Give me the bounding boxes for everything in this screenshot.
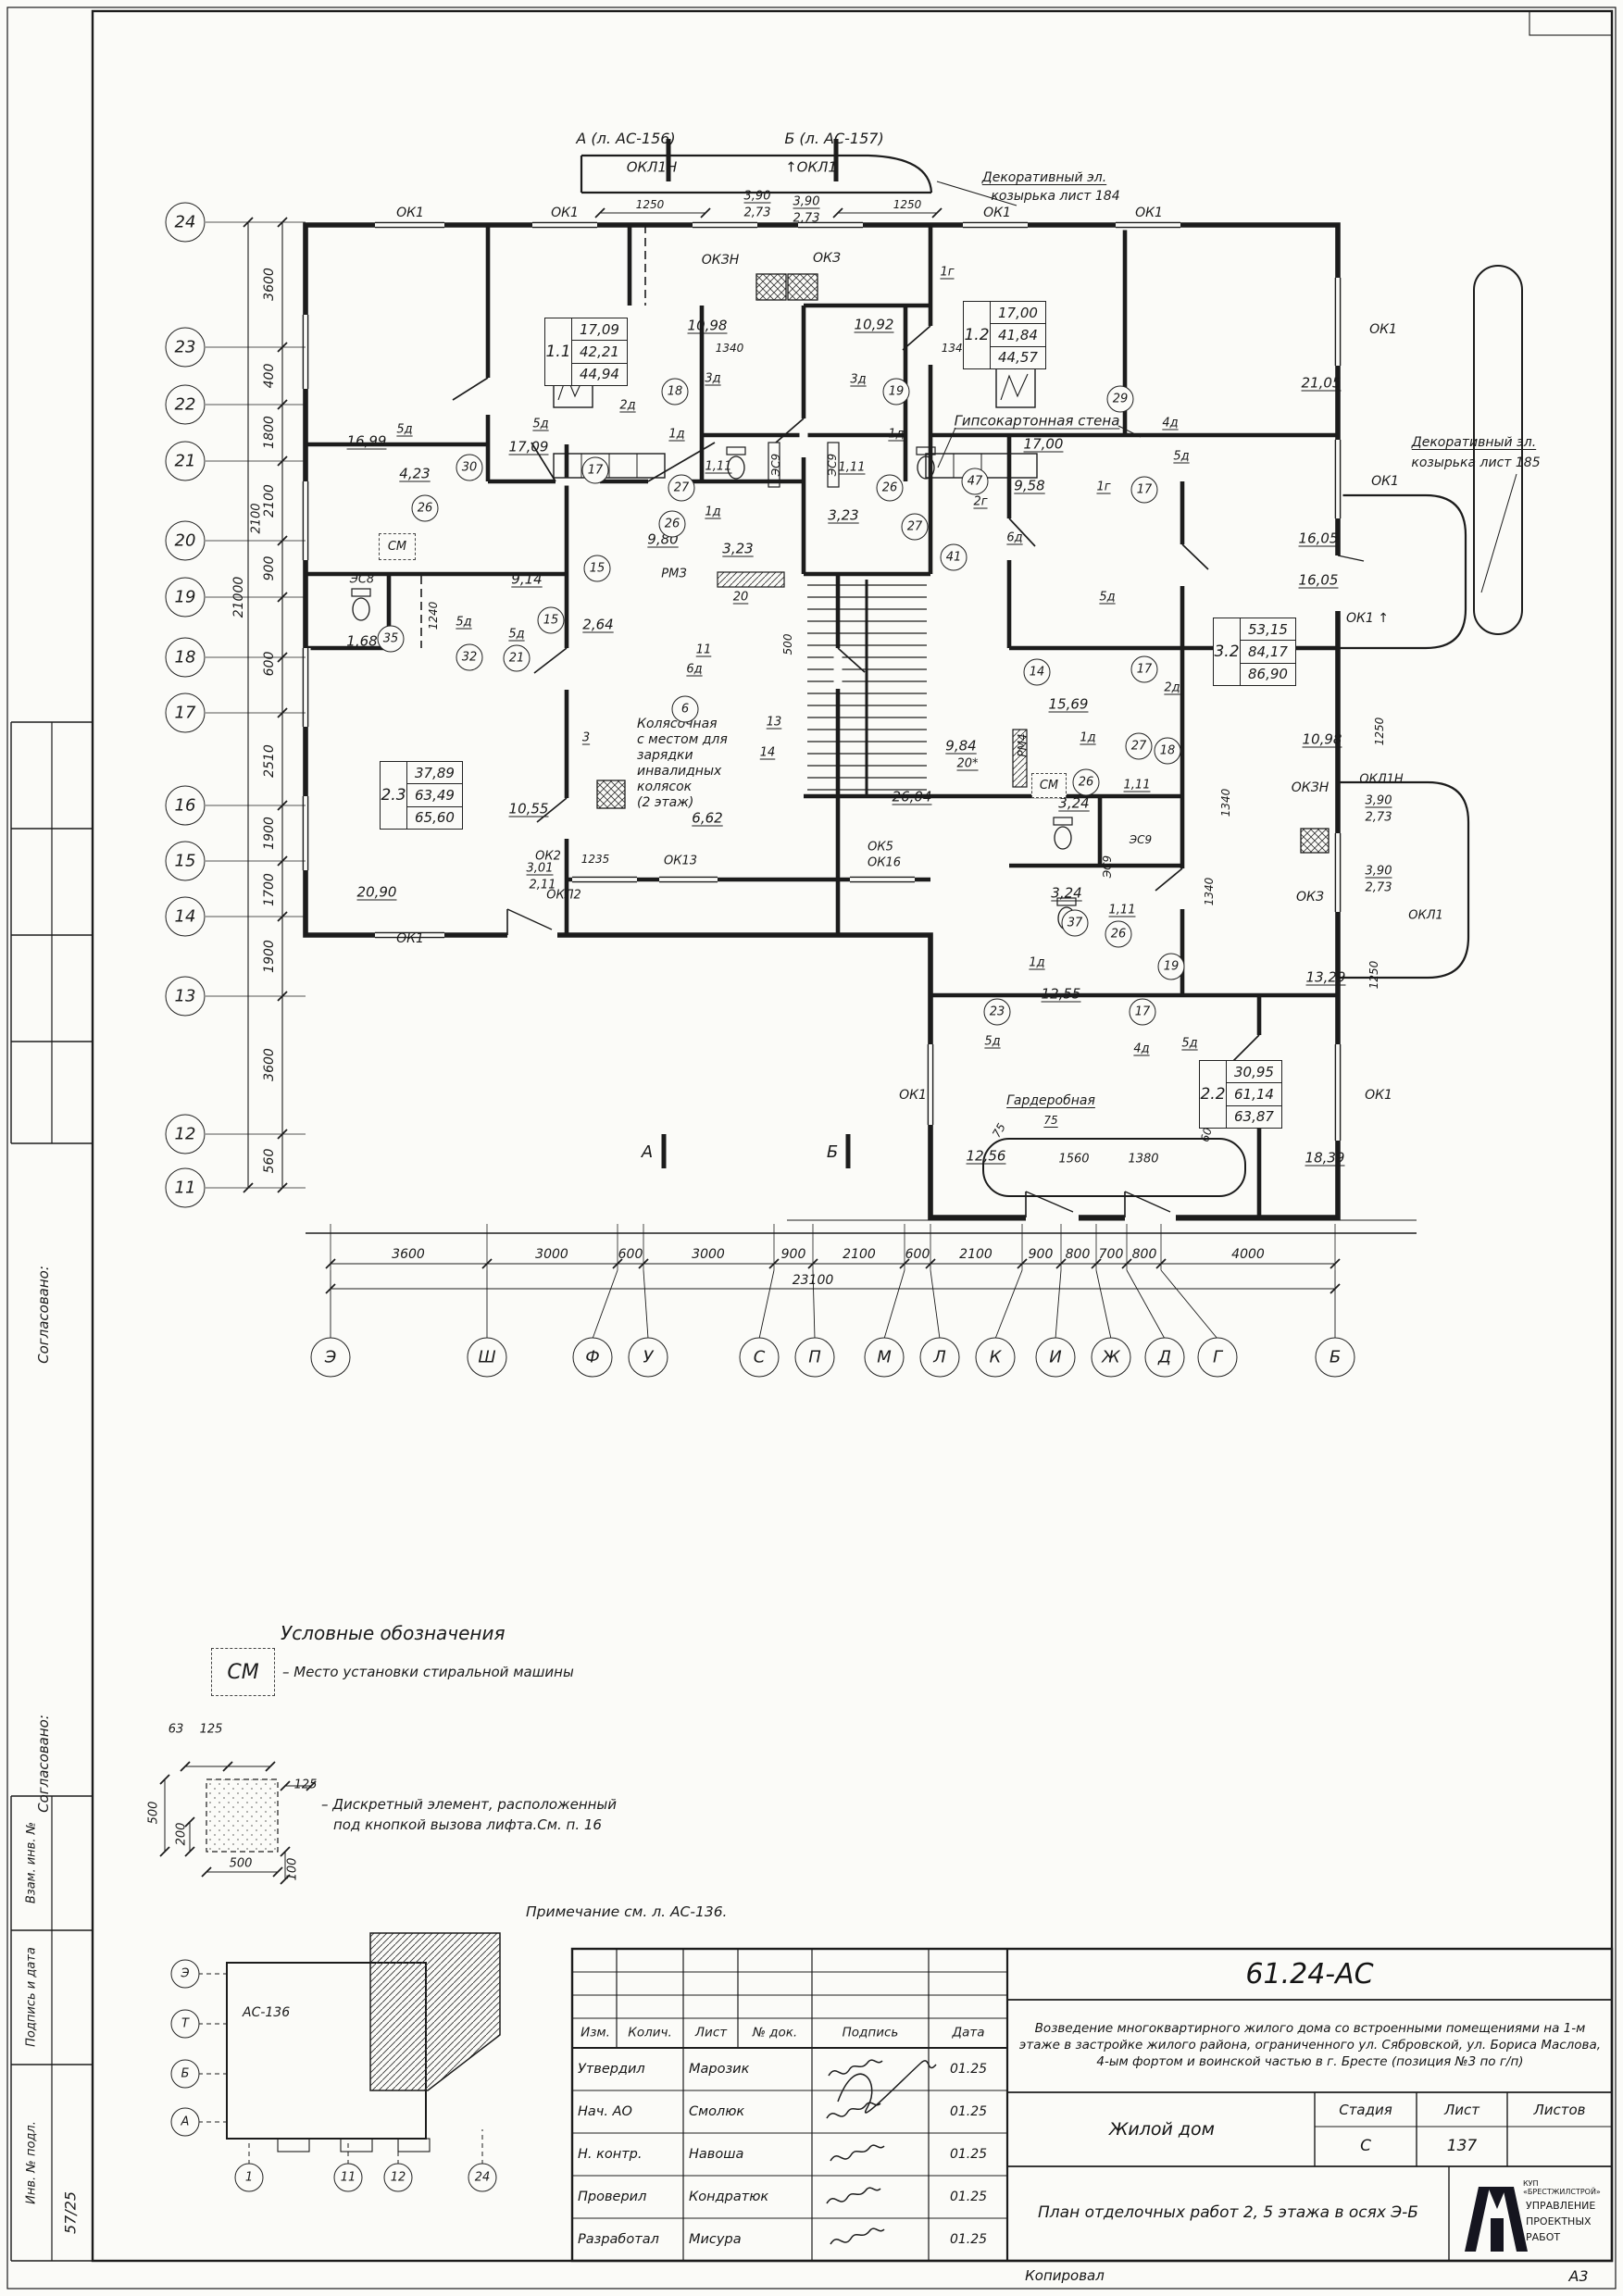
legend-detail-line1: – Дискретный элемент, расположенный	[321, 1796, 617, 1813]
axis-bubble-left: 20	[166, 521, 206, 561]
plan-label: 12,55	[1042, 988, 1081, 1002]
axis-bubble-left: 16	[166, 786, 206, 826]
plan-label: 1д	[705, 506, 720, 518]
axis-bubble-left: 14	[166, 897, 206, 937]
plan-label: 1800	[263, 416, 276, 449]
apartment-number: 1.2	[964, 302, 991, 368]
org-name-line4: РАБОТ	[1526, 2229, 1615, 2244]
plan-label: 600	[905, 1248, 930, 1261]
apartment-info-box: 2.337,8963,4965,60	[380, 761, 463, 830]
plan-label: ЭС9	[770, 454, 781, 476]
axis-bubble-bottom: К	[976, 1338, 1016, 1378]
legend-title: Условные обозначения	[281, 1622, 506, 1644]
plan-label: ОКЗ	[813, 252, 841, 265]
plan-label: 500	[148, 1802, 160, 1825]
plan-label: 6,62	[692, 812, 722, 826]
plan-label: 3,90	[1366, 866, 1392, 878]
position-callout: 19	[883, 379, 910, 406]
axis-bubble-left: 18	[166, 638, 206, 678]
plan-label: 14	[760, 747, 776, 759]
position-callout: 26	[1073, 769, 1100, 796]
titleblock-name: Кондратюк	[689, 2176, 809, 2218]
plan-label: 5д	[1099, 592, 1115, 604]
apartment-area-value: 65,60	[407, 807, 462, 829]
position-callout: 47	[962, 468, 989, 495]
titleblock-sheets-value	[1507, 2128, 1612, 2165]
plan-label: 1250	[636, 199, 665, 210]
plan-label: 1250	[893, 199, 922, 210]
plan-label: 2,64	[582, 618, 613, 632]
axis-bubble-bottom: Ф	[573, 1338, 613, 1378]
drawing-sheet: А (л. АС-156)ОКЛ1НБ (л. АС-157)↑ОКЛ1Деко…	[0, 0, 1623, 2296]
plan-label: козырька лист 185	[1411, 456, 1540, 469]
axis-bubble-left: 15	[166, 842, 206, 881]
plan-label: 3000	[535, 1248, 568, 1261]
stamp-agreed-1: Согласовано:	[35, 1266, 52, 1364]
axis-bubble-left: 24	[166, 203, 206, 243]
plan-label: 3000	[692, 1248, 725, 1261]
plan-label: 1560	[1058, 1154, 1089, 1166]
axis-bubble-left: 19	[166, 578, 206, 618]
apartment-area-value: 44,57	[991, 347, 1045, 368]
axis-bubble-left: 13	[166, 977, 206, 1017]
stamp-inventory-number: 57/25	[62, 2191, 80, 2234]
keyplan-axis-bubble: Т	[171, 2010, 200, 2039]
apartment-area-value: 53,15	[1241, 618, 1295, 641]
axis-bubble-left: 11	[166, 1168, 206, 1208]
plan-label: 1250	[1368, 961, 1380, 990]
plan-label: 3,90	[1366, 795, 1392, 807]
position-callout: 27	[902, 514, 929, 541]
plan-label: 2,73	[793, 213, 820, 225]
position-callout: 29	[1107, 386, 1134, 413]
legend-sm-description: – Место установки стиральной машины	[282, 1664, 574, 1680]
plan-label: 500	[782, 634, 793, 655]
plan-label: 3600	[263, 1048, 276, 1081]
plan-label: ОКЗН	[1292, 781, 1329, 794]
apartment-area-value: 63,49	[407, 784, 462, 806]
plan-label: ОК1	[1135, 206, 1163, 219]
plan-label: 5д	[396, 424, 412, 436]
plan-label: ОК1	[899, 1089, 927, 1102]
plan-label: 1,11	[705, 461, 732, 473]
plan-label: 3,23	[722, 543, 753, 556]
plan-label: ОК5	[868, 842, 893, 854]
axis-bubble-left: 23	[166, 328, 206, 368]
plan-label: 5д	[456, 617, 471, 629]
axis-bubble-bottom: Б	[1316, 1338, 1355, 1378]
plan-label: 900	[1029, 1248, 1054, 1261]
titleblock-header-col: № док.	[753, 2027, 797, 2040]
keyplan-axis-bubble: 1	[235, 2164, 264, 2192]
titleblock-header-col: Подпись	[843, 2027, 899, 2040]
titleblock-date: 01.25	[930, 2048, 1006, 2090]
apartment-area-value: 37,89	[407, 762, 462, 784]
plan-label: 20	[733, 592, 749, 604]
plan-label: 3600	[263, 268, 276, 301]
plan-label: 1250	[1374, 717, 1385, 746]
apartment-area-value: 63,87	[1227, 1106, 1281, 1128]
plan-label: 20*	[956, 758, 978, 770]
plan-label: 9,14	[511, 573, 542, 587]
plan-label: 3600	[392, 1248, 425, 1261]
plan-label: 4,23	[399, 468, 430, 481]
plan-label: зарядки	[637, 749, 693, 762]
titleblock-stage-value: С	[1315, 2128, 1417, 2165]
plan-label: 1,11	[839, 462, 866, 474]
plan-label: 700	[1099, 1248, 1124, 1261]
apartment-number: 1.1	[545, 318, 572, 385]
plan-label: 2100	[251, 503, 263, 533]
plan-label: 17,00	[1024, 438, 1064, 452]
plan-label: 5д	[984, 1036, 1000, 1048]
plan-label: ОКЛ1	[1408, 910, 1443, 922]
position-callout: 15	[538, 607, 565, 634]
apartment-info-box: 3.253,1584,1786,90	[1213, 618, 1296, 686]
plan-label: ОК16	[868, 857, 901, 869]
plan-label: ЭС8	[350, 574, 374, 586]
plan-label: 6д	[686, 664, 702, 676]
apartment-number: 3.2	[1214, 618, 1241, 685]
plan-label: 16,05	[1299, 574, 1339, 588]
plan-label: ОК1	[1371, 475, 1399, 488]
plan-label: 11	[696, 644, 712, 656]
titleblock-date: 01.25	[930, 2090, 1006, 2133]
plan-label: ОКЗН	[702, 254, 739, 267]
position-callout: 17	[1131, 656, 1158, 683]
axis-bubble-left: 17	[166, 693, 206, 733]
plan-label: 500	[230, 1858, 253, 1870]
plan-label: 560	[263, 1149, 276, 1174]
plan-label: 3,90	[793, 196, 820, 208]
titleblock-stage-label: Стадия	[1315, 2095, 1417, 2125]
plan-label: 75	[1043, 1115, 1057, 1126]
axis-bubble-bottom: П	[795, 1338, 835, 1378]
plan-label: ОК1	[1365, 1089, 1392, 1102]
plan-label: РМЗ	[661, 568, 686, 580]
plan-label: 16,05	[1299, 532, 1339, 546]
titleblock-header-col: Изм.	[581, 2027, 610, 2040]
plan-label: 2г	[973, 496, 987, 508]
plan-label: Б (л. АС-157)	[784, 131, 883, 146]
apartment-area-value: 30,95	[1227, 1061, 1281, 1083]
titleblock-role: Н. контр.	[578, 2133, 680, 2176]
plan-label: 1д	[1080, 732, 1095, 744]
plan-label: 600	[263, 652, 276, 677]
plan-label: Гипсокартонная стена	[955, 415, 1120, 429]
position-callout: 23	[984, 999, 1011, 1026]
position-callout: 21	[504, 645, 531, 672]
plan-label: 2,73	[1366, 812, 1392, 824]
plan-label: 20,90	[357, 886, 397, 900]
plan-label: 1340	[716, 343, 744, 354]
position-callout: 30	[456, 455, 483, 481]
plan-label: 1д	[1029, 957, 1044, 969]
stamp-podpis-data: Подпись и дата	[25, 1947, 39, 2047]
plan-label: 10,98	[1303, 733, 1342, 747]
plan-label: 26,04	[893, 791, 932, 805]
washing-machine-symbol-label: СМ	[227, 1661, 258, 1684]
plan-label: 4000	[1231, 1248, 1265, 1261]
plan-label: 3,24	[1058, 797, 1089, 811]
plan-label: Декоративный эл.	[982, 171, 1106, 184]
plan-label: ОКЛ2	[546, 890, 581, 902]
plan-label: 12,56	[967, 1150, 1006, 1164]
plan-label: 900	[263, 556, 276, 581]
apartment-area-value: 44,94	[572, 364, 627, 385]
plan-label: А	[642, 1144, 653, 1161]
plan-label: 2д	[1164, 682, 1180, 694]
titleblock-role: Утвердил	[578, 2048, 680, 2090]
plan-label: 125	[294, 1779, 318, 1791]
position-callout: 26	[1105, 921, 1132, 948]
position-callout: 35	[378, 626, 405, 653]
plan-label: козырька лист 184	[991, 190, 1119, 203]
titleblock-header-col: Колич.	[628, 2027, 672, 2040]
stamp-agreed-2: Согласовано:	[35, 1715, 52, 1813]
position-callout: 17	[582, 457, 609, 484]
titleblock-name: Смолюк	[689, 2090, 809, 2133]
keyplan-sheet-ref: АС-136	[243, 2005, 290, 2020]
plan-label: 13	[767, 717, 782, 729]
footer-copied-label: Копировал	[981, 2265, 1148, 2287]
plan-label: 3	[582, 732, 590, 744]
plan-label: 9,84	[945, 740, 976, 754]
axis-bubble-left: 12	[166, 1115, 206, 1154]
plan-label: 3,24	[1051, 887, 1081, 901]
position-callout: 26	[412, 495, 439, 522]
plan-label: 5д	[1181, 1038, 1197, 1050]
position-callout: 17	[1131, 477, 1158, 504]
axis-bubble-bottom: М	[865, 1338, 905, 1378]
apartment-info-box: 2.230,9561,1463,87	[1199, 1060, 1282, 1129]
plan-label: (2 этаж)	[637, 796, 693, 809]
plan-label: 4д	[1133, 1043, 1149, 1055]
plan-label: 2510	[263, 744, 276, 778]
plan-label: 5д	[532, 418, 548, 430]
legend-detail-line2: под кнопкой вызова лифта.См. п. 16	[333, 1816, 602, 1833]
position-callout: 19	[1158, 954, 1185, 980]
apartment-number: 2.2	[1200, 1061, 1227, 1128]
position-callout: 27	[668, 475, 695, 502]
stamp-inv-podl: Инв. № подл.	[25, 2121, 39, 2204]
plan-label: 18,39	[1305, 1152, 1345, 1166]
plan-label: 16,99	[347, 435, 387, 449]
plan-label: 2100	[843, 1248, 876, 1261]
apartment-info-box: 1.217,0041,8444,57	[963, 301, 1046, 369]
plan-label: ОК1	[396, 206, 424, 219]
plan-label: 15,69	[1049, 698, 1089, 712]
plan-label: 5д	[508, 629, 524, 641]
axis-bubble-bottom: Ж	[1092, 1338, 1131, 1378]
plan-label: 400	[263, 364, 276, 389]
plan-label: 3д	[705, 373, 720, 385]
titleblock-name: Навоша	[689, 2133, 809, 2176]
plan-label: 125	[200, 1724, 223, 1736]
plan-label: 3,23	[828, 509, 858, 523]
plan-label: РМ4	[1017, 733, 1028, 756]
washing-machine-place: СМ	[1031, 773, 1067, 798]
plan-label: 600	[618, 1248, 643, 1261]
position-callout: 26	[659, 511, 686, 538]
axis-bubble-bottom: Ш	[468, 1338, 507, 1378]
plan-label: 1д	[888, 429, 904, 441]
plan-label: 1340	[1204, 878, 1215, 906]
plan-label: с местом для	[637, 733, 728, 746]
titleblock-drawing-title: План отделочных работ 2, 5 этажа в осях …	[1014, 2170, 1442, 2257]
plan-label: 4д	[1162, 418, 1178, 430]
apartment-area-value: 42,21	[572, 341, 627, 363]
plan-label: 3д	[850, 374, 866, 386]
stamp-vzam-inv: Взам. инв. №	[25, 1822, 39, 1903]
plan-label: ЭС9	[1102, 855, 1113, 878]
plan-label: 1г	[1096, 481, 1110, 493]
plan-label: ↑ОКЛ1	[785, 161, 837, 175]
note-text: Примечание см. л. АС-136.	[526, 1903, 727, 1920]
plan-label: 2д	[619, 400, 635, 412]
keyplan-axis-bubble: Э	[171, 1960, 200, 1989]
titleblock-name: Мисура	[689, 2218, 809, 2261]
plan-label: 1900	[263, 817, 276, 850]
plan-label: 17,09	[509, 441, 549, 455]
plan-label: 10,92	[855, 318, 894, 332]
apartment-area-value: 84,17	[1241, 641, 1295, 663]
position-callout: 15	[584, 555, 611, 582]
keyplan-axis-bubble: 24	[468, 2164, 497, 2192]
plan-label: Гардеробная	[1006, 1094, 1095, 1107]
plan-label: ОК1	[396, 932, 424, 945]
titleblock-project-description: Возведение многоквартирного жилого дома …	[1013, 2002, 1607, 2090]
axis-bubble-left: 22	[166, 385, 206, 425]
apartment-area-value: 61,14	[1227, 1083, 1281, 1105]
plan-label: 1,11	[1109, 905, 1136, 917]
plan-label: 2,73	[744, 207, 771, 219]
plan-label: 13,29	[1306, 971, 1346, 985]
plan-label: Декоративный эл.	[1412, 436, 1536, 449]
plan-label: 10,55	[509, 803, 549, 817]
titleblock-sheet-value: 137	[1417, 2128, 1507, 2165]
keyplan-axis-bubble: Б	[171, 2060, 200, 2089]
titleblock-role: Проверил	[578, 2176, 680, 2218]
apartment-area-value: 41,84	[991, 324, 1045, 346]
titleblock-object: Жилой дом	[1009, 2094, 1315, 2165]
plan-label: 1235	[581, 854, 610, 865]
axis-bubble-bottom: У	[629, 1338, 668, 1378]
plan-label: 1,68	[346, 635, 377, 649]
plan-label: ЭС9	[1130, 834, 1152, 845]
position-callout: 26	[877, 475, 904, 502]
plan-label: 200	[176, 1823, 188, 1846]
plan-label: 23100	[793, 1274, 834, 1287]
axis-bubble-bottom: Л	[920, 1338, 960, 1378]
plan-label: А (л. АС-156)	[576, 131, 675, 146]
plan-label: 1380	[1128, 1154, 1158, 1166]
titleblock-date: 01.25	[930, 2176, 1006, 2218]
washing-machine-place: СМ	[379, 533, 416, 560]
plan-label: инвалидных	[637, 765, 721, 778]
titleblock-sheets-label: Листов	[1507, 2095, 1612, 2125]
titleblock-name: Марозик	[689, 2048, 809, 2090]
washing-machine-symbol: СМ	[211, 1648, 275, 1696]
titleblock-sheet-label: Лист	[1417, 2095, 1507, 2125]
axis-bubble-bottom: С	[740, 1338, 780, 1378]
plan-label: 900	[781, 1248, 806, 1261]
apartment-area-value: 17,09	[572, 318, 627, 341]
keyplan-axis-bubble: А	[171, 2108, 200, 2137]
plan-label: ОК1	[983, 206, 1011, 219]
plan-label: ОКЛ1Н	[627, 161, 678, 175]
plan-label: 1г	[940, 267, 954, 279]
plan-label: ОК13	[664, 855, 697, 867]
plan-label: ОК1 ↑	[1346, 612, 1389, 625]
position-callout: 18	[1155, 738, 1181, 765]
apartment-area-value: 86,90	[1241, 664, 1295, 685]
position-callout: 27	[1126, 733, 1153, 760]
plan-label: 800	[1066, 1248, 1091, 1261]
plan-label: 1,11	[1124, 780, 1151, 792]
plan-label: 3,90	[744, 191, 771, 203]
plan-label: ОКЗ	[1296, 891, 1324, 904]
titleblock-header-col: Лист	[695, 2027, 727, 2040]
plan-label: ОК1	[551, 206, 579, 219]
axis-bubble-bottom: Г	[1198, 1338, 1238, 1378]
plan-label: ОКЛ1Н	[1359, 774, 1403, 786]
position-callout: 41	[941, 544, 968, 571]
titleblock-date: 01.25	[930, 2218, 1006, 2261]
plan-label: 1240	[428, 602, 439, 630]
apartment-info-box: 1.117,0942,2144,94	[544, 318, 628, 386]
plan-label: 1900	[263, 940, 276, 973]
plan-label: 3,01	[527, 863, 554, 875]
org-name-line3: ПРОЕКТНЫХ	[1526, 2214, 1615, 2228]
org-name-line2: УПРАВЛЕНИЕ	[1526, 2198, 1615, 2213]
plan-label: 10,98	[688, 319, 728, 333]
keyplan-axis-bubble: 12	[384, 2164, 413, 2192]
titleblock-role: Разработал	[578, 2218, 680, 2261]
plan-label: 21,05	[1302, 377, 1342, 391]
titleblock-doc-number: 61.24-АС	[1009, 1951, 1610, 1997]
org-name-line1: КУП «БРЕСТЖИЛСТРОЙ»	[1523, 2181, 1612, 2194]
plan-label: 63	[169, 1724, 184, 1736]
titleblock-header-col: Дата	[953, 2027, 985, 2040]
apartment-number: 2.3	[381, 762, 407, 829]
position-callout: 17	[1130, 999, 1156, 1026]
plan-label: колясок	[637, 780, 692, 793]
titleblock-date: 01.25	[930, 2133, 1006, 2176]
keyplan-axis-bubble: 11	[334, 2164, 363, 2192]
plan-label: 6д	[1006, 532, 1022, 544]
plan-label: 21000	[232, 577, 245, 618]
footer-format: А3	[1551, 2265, 1606, 2287]
plan-label: 9,58	[1014, 480, 1044, 493]
position-callout: 32	[456, 644, 483, 671]
plan-label: Б	[827, 1144, 838, 1161]
axis-bubble-bottom: И	[1036, 1338, 1076, 1378]
plan-label: 1д	[668, 429, 684, 441]
plan-label: 800	[1132, 1248, 1157, 1261]
axis-bubble-bottom: Д	[1145, 1338, 1185, 1378]
plan-label: 1340	[1220, 789, 1231, 817]
plan-label: 5д	[1173, 451, 1189, 463]
plan-label: 100	[287, 1858, 299, 1881]
position-callout: 6	[672, 696, 699, 723]
plan-label: ЭС9	[827, 454, 838, 476]
titleblock-role: Нач. АО	[578, 2090, 680, 2133]
plan-label: 1700	[263, 873, 276, 906]
position-callout: 37	[1062, 910, 1089, 937]
plan-label: 2100	[263, 484, 276, 518]
axis-bubble-left: 21	[166, 442, 206, 481]
